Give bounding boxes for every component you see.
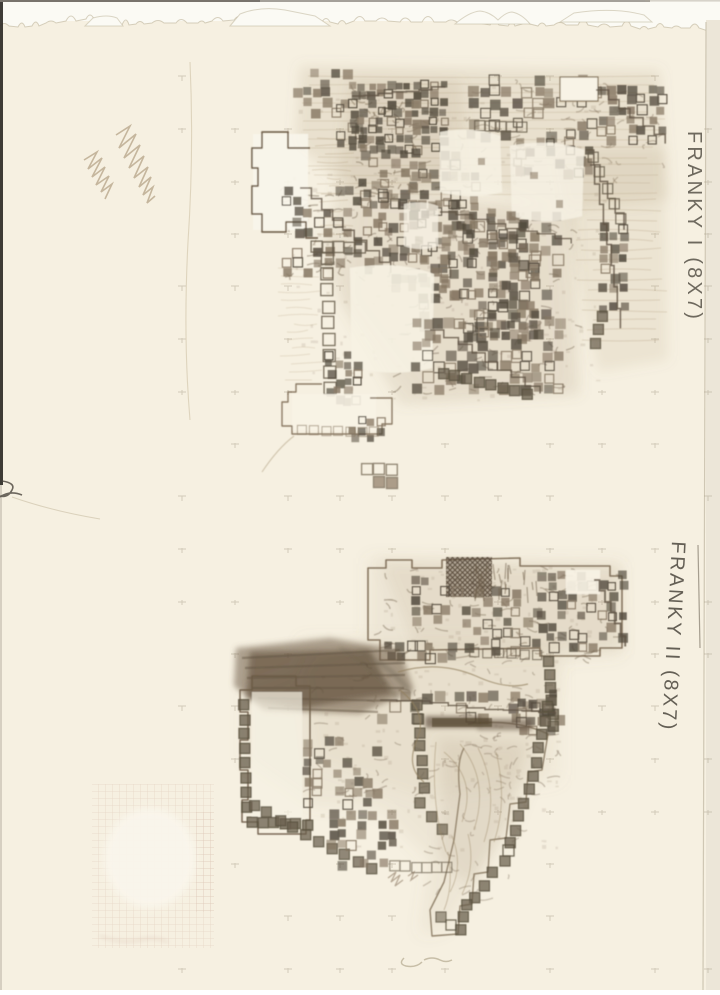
svg-text:FRANKY I (8X7): FRANKY I (8X7): [683, 131, 705, 322]
